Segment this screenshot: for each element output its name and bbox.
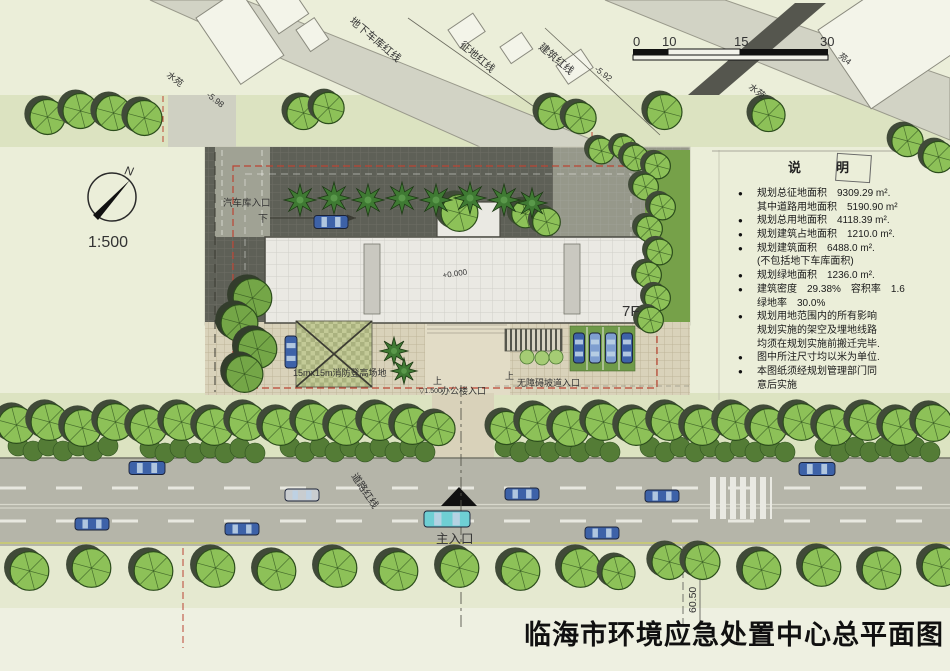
floor-count-label: 7F [622,303,640,320]
legend-item-text: 图中所注尺寸均以米为单位. [757,352,880,364]
car [314,216,348,229]
legend-bullet: ● [736,229,757,241]
car [225,523,259,535]
car [285,336,297,368]
legend-item-text: (不包括地下车库面积) [757,256,854,268]
legend-bullet: ● [736,352,757,364]
legend-item-text: 意后实施 [757,380,797,392]
garage-entrance-label: 汽车库入口 [223,197,271,209]
office-entrance-label: 办公楼入口 [441,385,486,396]
legend-item-text: 其中道路用地面积 5190.90 m² [757,202,898,214]
car [590,333,601,363]
legend-item: ●规划总征地面积 9309.29 m². [736,188,949,202]
scale-bar-seg [740,49,828,55]
legend-item-text: 规划总征地面积 9309.29 m². [757,188,890,200]
hedge-shrub [600,442,620,462]
road-dimension-label: 60.50 [687,587,699,613]
car [606,333,617,363]
car [645,490,679,502]
palm-tree [391,358,417,384]
scale-bar-seg [633,49,668,55]
legend-item: ●规划用地范围内的所有影响 [736,311,949,325]
scale-bar-seg [668,49,740,55]
bush [520,350,534,364]
car [622,333,633,363]
scale-bar-lower [633,55,828,60]
legend-item-text: 规划用地范围内的所有影响 [757,311,877,323]
hedge-shrub [920,442,940,462]
scale-tick: 15 [734,34,748,49]
palm-tree [454,182,486,214]
palm-tree [517,188,547,218]
down-label: 下 [258,214,268,225]
legend-bullet: ● [736,215,757,227]
bush [549,350,563,364]
accessible-ramp [505,329,562,351]
bush [535,351,549,365]
legend-bullet: ● [736,188,757,200]
up-label: 上 [433,376,442,386]
legend-item-text: 规划总用地面积 4118.39 m². [757,215,890,227]
hedge-shrub [775,442,795,462]
legend-item: ●本图纸须经规划管理部门同 [736,366,949,380]
legend-panel: ●规划总征地面积 9309.29 m².●其中道路用地面积 5190.90 m²… [736,188,949,393]
car [799,463,835,476]
car [505,488,539,500]
site-plan-sheet: 0101530 地下车库红线 征地红线 建筑红线 水苑 -5.98 -5.92 … [0,0,950,671]
crosswalk [708,477,772,519]
palm-tree [318,182,350,214]
legend-item: ●图中所注尺寸均以米为单位. [736,352,949,366]
scale-tick: 10 [662,34,676,49]
legend-item: ●规划建筑占地面积 1210.0 m². [736,229,949,243]
legend-item-text: 规划绿地面积 1236.0 m². [757,270,875,282]
legend-bullet: ● [736,270,757,282]
legend-item: ●规划绿地面积 1236.0 m². [736,270,949,284]
legend-item: ●规划总用地面积 4118.39 m². [736,215,949,229]
legend-item: ●建筑密度 29.38% 容积率 1.6 [736,284,949,298]
legend-item-text: 规划建筑占地面积 1210.0 m². [757,229,895,241]
legend-bullet: ● [736,284,757,296]
legend-item: ●规划实施的架空及埋地线路 [736,325,949,339]
palm-tree [488,184,520,216]
car [75,518,109,530]
stair-core [364,244,380,314]
palm-tree [352,184,384,216]
legend-item-text: 均须在规划实施前搬迁完毕. [757,339,880,351]
palm-tree [420,184,452,216]
car [574,333,585,363]
scale-tick: 30 [820,34,834,49]
palm-tree [386,182,418,214]
legend-item: ●意后实施 [736,380,949,394]
car [424,511,470,527]
car [585,527,619,539]
legend-item-text: 规划实施的架空及埋地线路 [757,325,877,337]
car [129,462,165,475]
scale-tick: 0 [633,34,640,49]
legend-bullet: ● [736,243,757,255]
legend-bullet: ● [736,311,757,323]
driveway-branch [168,95,236,147]
legend-stamp-box [835,153,872,183]
hedge-shrub [415,442,435,462]
legend-item: ●(不包括地下车库面积) [736,256,949,270]
main-entrance-label: 主入口 [436,532,474,546]
legend-item-text: 绿地率 30.0% [757,298,825,310]
legend-item: ●规划建筑面积 6488.0 m². [736,243,949,257]
stair-core [564,244,580,314]
legend-item-text: 本图纸须经规划管理部门同 [757,366,877,378]
legend-item-text: 建筑密度 29.38% 容积率 1.6 [757,284,905,296]
drawing-scale-label: 1:500 [88,234,128,251]
legend-item: ●绿地率 30.0% [736,298,949,312]
roof-hatch [265,237,645,323]
entrance-level-label: ▽1.500 [419,388,442,395]
up-label: 上 [505,371,514,381]
palm-tree [284,184,316,216]
legend-item: ●均须在规划实施前搬迁完毕. [736,339,949,353]
legend-item: ●其中道路用地面积 5190.90 m² [736,202,949,216]
legend-item-text: 规划建筑面积 6488.0 m². [757,243,875,255]
legend-bullet: ● [736,366,757,378]
hedge-shrub [245,443,265,463]
car [285,489,319,501]
fire-pad-label: 15mx15m消防登高场地 [293,367,387,378]
plan-title: 临海市环境应急处置中心总平面图 [524,613,944,652]
ramp-entrance-label: 无障碍坡道入口 [517,377,580,388]
